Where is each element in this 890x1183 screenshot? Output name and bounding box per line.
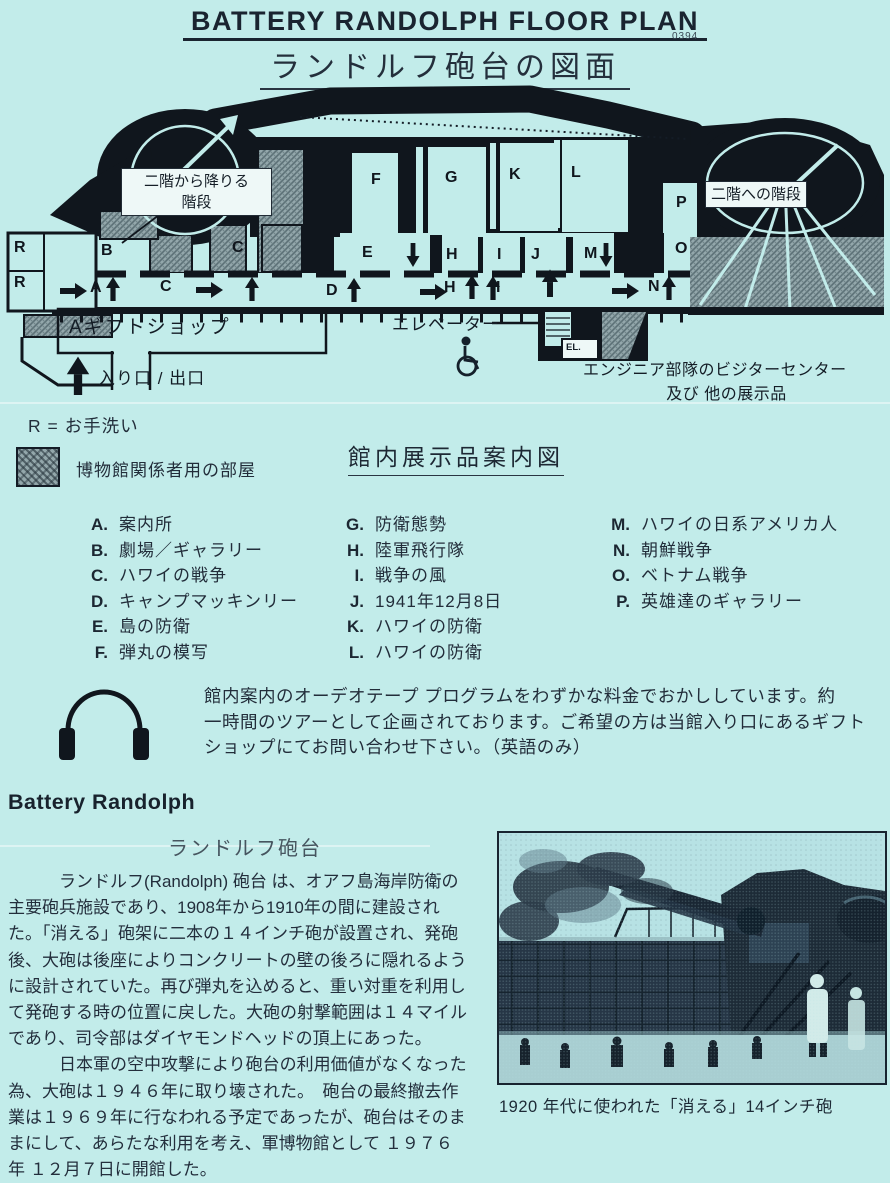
exhibit-column-2: G.防衛態勢 H.陸軍飛行隊 I.戦争の風 J.1941年12月8日 K.ハワイ…: [338, 512, 502, 665]
section-heading-en: Battery Randolph: [8, 790, 195, 815]
exhibit-item: M.ハワイの日系アメリカ人: [604, 512, 838, 538]
plan-room-letter-J: J: [531, 247, 540, 263]
exhibit-item: O.ベトナム戦争: [604, 563, 838, 589]
historic-gun-photo: [497, 831, 887, 1085]
plan-room-letter-N: N: [648, 279, 660, 295]
plan-room-letter-G: G: [445, 170, 457, 186]
plan-room-letter-H: H: [444, 280, 456, 296]
legend-restroom: R = お手洗い: [28, 413, 139, 438]
plan-room-letter-D: D: [326, 283, 338, 299]
exhibit-column-3: M.ハワイの日系アメリカ人 N.朝鮮戦争 O.ベトナム戦争 P.英雄達のギャラリ…: [604, 512, 838, 614]
plan-room-letter-C: C: [160, 279, 172, 295]
elevator-box-label: EL.: [566, 342, 581, 353]
page-title: BATTERY RANDOLPH FLOOR PLAN: [0, 6, 890, 41]
scanned-brochure-page: { "page": { "title_en": "BATTERY RANDOLP…: [0, 0, 890, 1170]
exhibit-item: H.陸軍飛行隊: [338, 538, 502, 564]
body-paragraphs: ランドルフ(Randolph) 砲台 は、オアフ島海岸防衛の 主要砲兵施設であり…: [8, 869, 496, 1183]
plan-room-letter-A: A: [90, 280, 102, 296]
floor-plan: RRBCFGKLPEHIJMOACDHIN 二階から降りる 階段 二階への階段 …: [0, 85, 890, 407]
plan-room-letter-M: M: [584, 246, 597, 262]
exhibit-column-1: A.案内所 B.劇場／ギャラリー C.ハワイの戦争 D.キャンプマッキンリー E…: [82, 512, 298, 665]
plan-room-letter-R: R: [14, 240, 26, 256]
plan-room-letter-E: E: [362, 245, 373, 261]
plan-room-letter-L: L: [571, 165, 581, 181]
scan-streak: [0, 402, 890, 404]
legend-hatch-swatch: [16, 447, 60, 487]
legend-staff-room: 博物館関係者用の部屋: [76, 456, 256, 481]
exhibit-item: D.キャンプマッキンリー: [82, 589, 298, 615]
section-heading-ja: ランドルフ砲台: [168, 832, 322, 861]
exhibit-item: L.ハワイの防衛: [338, 640, 502, 666]
exhibit-item: G.防衛態勢: [338, 512, 502, 538]
plan-room-letter-I: I: [497, 247, 501, 263]
entrance-exit-label: 入り口 / 出口: [98, 364, 205, 389]
exhibit-item: I.戦争の風: [338, 563, 502, 589]
exhibit-item: E.島の防衛: [82, 614, 298, 640]
plan-room-letter-C: C: [232, 240, 244, 256]
plan-room-letter-H: H: [446, 247, 458, 263]
engineer-center-label-line1: エンジニア部隊のビジターセンター: [583, 356, 847, 380]
audio-program-note: 館内案内のオーデオテープ プログラムをわずかな料金でおかししています。約 一時間…: [204, 684, 890, 761]
headphones-icon: [48, 674, 158, 775]
exhibit-item: A.案内所: [82, 512, 298, 538]
page-title-japanese: ランドルフ砲台の図面: [0, 42, 890, 90]
gun-photo-illustration: [499, 833, 885, 1083]
wheelchair-icon: [458, 337, 478, 376]
plan-room-letter-R: R: [14, 275, 26, 291]
gift-shop-label: Aギフトショップ: [69, 312, 231, 339]
plan-room-letter-P: P: [676, 195, 687, 211]
exhibit-item: C.ハワイの戦争: [82, 563, 298, 589]
stairs-down-label: 二階から降りる 階段: [121, 168, 272, 216]
photo-caption: 1920 年代に使われた「消える」14インチ砲: [499, 1093, 889, 1117]
exhibit-guide-heading: 館内展示品案内図: [348, 438, 564, 476]
page-title-japanese-text: ランドルフ砲台の図面: [260, 42, 630, 90]
elevator-label: エレベーター: [392, 310, 500, 335]
page-title-text: BATTERY RANDOLPH FLOOR PLAN: [183, 6, 707, 41]
stairs-up-label: 二階への階段: [705, 181, 807, 208]
exhibit-item: P.英雄達のギャラリー: [604, 589, 838, 615]
exhibit-item: F.弾丸の模写: [82, 640, 298, 666]
plan-room-letter-I: I: [496, 280, 500, 296]
exhibit-item: B.劇場／ギャラリー: [82, 538, 298, 564]
exhibit-item: N.朝鮮戦争: [604, 538, 838, 564]
plan-room-letter-O: O: [675, 241, 687, 257]
exhibit-item: K.ハワイの防衛: [338, 614, 502, 640]
document-number: 0394: [672, 31, 698, 42]
plan-room-letter-B: B: [101, 243, 113, 259]
exhibit-item: J.1941年12月8日: [338, 589, 502, 615]
plan-room-letter-F: F: [371, 172, 381, 188]
plan-room-letter-K: K: [509, 167, 521, 183]
entrance-arrow-icon: [67, 357, 89, 395]
engineer-center-label-line2: 及び 他の展示品: [583, 380, 870, 404]
